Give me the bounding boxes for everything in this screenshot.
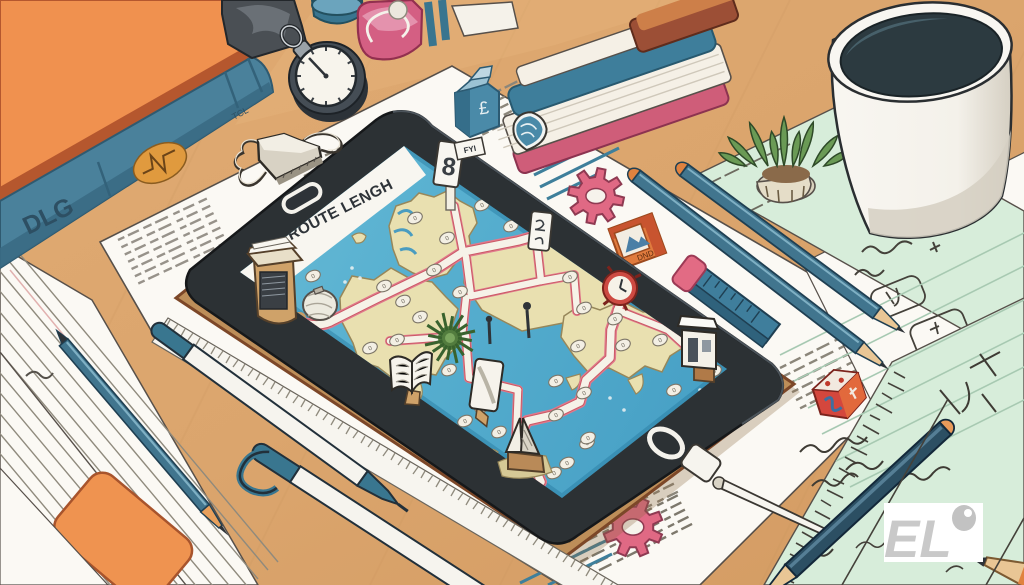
svg-text:EL: EL — [884, 510, 952, 569]
